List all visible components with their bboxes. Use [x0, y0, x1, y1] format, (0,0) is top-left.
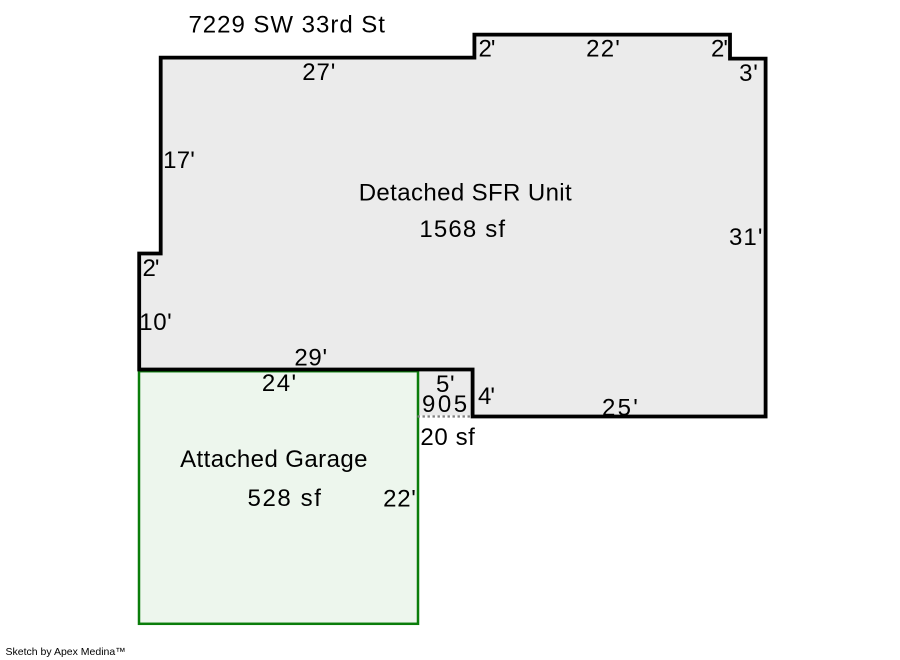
svg-text:2': 2' [479, 35, 496, 62]
svg-text:25': 25' [602, 395, 638, 422]
svg-text:Sketch by Apex Medina™: Sketch by Apex Medina™ [6, 646, 126, 658]
svg-text:2': 2' [143, 255, 160, 282]
svg-text:22': 22' [383, 486, 416, 513]
svg-text:3': 3' [739, 60, 758, 87]
svg-text:22': 22' [586, 35, 620, 62]
svg-text:4': 4' [478, 383, 495, 410]
svg-text:Attached Garage: Attached Garage [180, 446, 367, 473]
svg-text:2': 2' [711, 35, 728, 62]
svg-text:10': 10' [139, 309, 171, 336]
svg-text:Detached SFR Unit: Detached SFR Unit [359, 180, 572, 207]
svg-text:528 sf: 528 sf [248, 485, 322, 512]
svg-text:1568 sf: 1568 sf [419, 216, 505, 243]
svg-text:27': 27' [302, 59, 335, 86]
svg-text:905: 905 [422, 391, 467, 418]
svg-text:29': 29' [294, 345, 327, 372]
svg-text:20 sf: 20 sf [420, 424, 475, 451]
svg-text:7229 SW 33rd St: 7229 SW 33rd St [188, 11, 385, 38]
svg-text:31': 31' [729, 224, 763, 251]
svg-text:24': 24' [262, 370, 296, 397]
svg-text:17': 17' [163, 147, 195, 174]
